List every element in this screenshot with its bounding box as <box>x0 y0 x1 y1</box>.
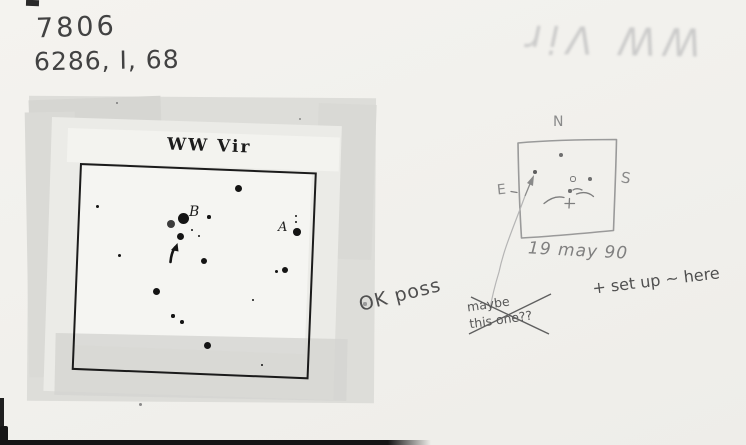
star-dot <box>178 213 189 224</box>
star-dot <box>295 221 298 224</box>
star-dot <box>204 342 211 349</box>
dot-layer <box>0 0 746 445</box>
star-dot <box>171 314 174 317</box>
star-dot <box>282 267 288 273</box>
star-dot <box>167 220 175 228</box>
sketch-label-east: E <box>496 182 506 199</box>
speck <box>299 118 302 121</box>
sketch-dot <box>568 189 571 192</box>
star-dot <box>201 258 207 264</box>
sketch-dot <box>559 153 563 157</box>
star-dot <box>293 228 301 236</box>
star-dot <box>235 185 242 192</box>
star-dot <box>177 233 184 240</box>
star-dot <box>295 215 297 217</box>
star-dot <box>198 235 201 238</box>
star-label-b: B <box>189 204 199 220</box>
star-dot <box>191 229 193 231</box>
star-dot <box>252 299 255 302</box>
star-label-a: A <box>278 220 287 235</box>
star-dot <box>118 254 121 257</box>
star-dot <box>207 215 211 219</box>
scanned-finder-chart-card: WW Vir 7806 6286, I, 68 WW Vir B A <box>0 0 746 445</box>
sketch-dot <box>533 170 537 174</box>
star-dot <box>96 205 99 208</box>
speck <box>116 102 119 105</box>
sketch-dot <box>570 176 575 181</box>
speck <box>139 403 142 406</box>
star-dot <box>180 320 184 324</box>
sketch-label-north: N <box>553 114 563 130</box>
star-dot <box>153 288 160 295</box>
sketch-dot <box>588 177 592 181</box>
star-dot <box>275 270 278 273</box>
star-dot <box>261 364 263 366</box>
